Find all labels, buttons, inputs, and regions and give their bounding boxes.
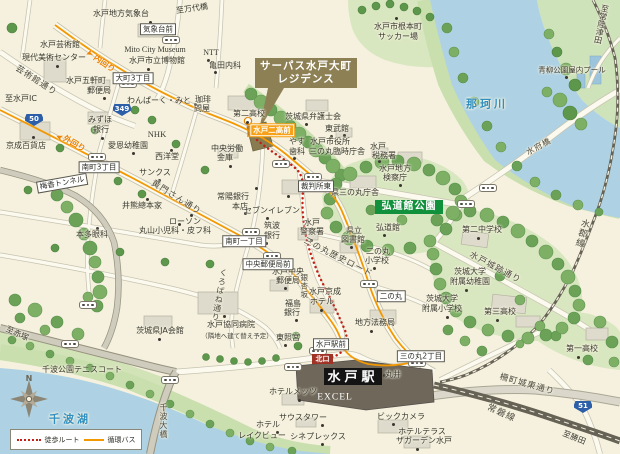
ntt: NTT xyxy=(203,49,219,57)
hotel-terrace-line2: ザガーデン水戸 xyxy=(396,437,452,445)
mito-police-line2: 警察署 xyxy=(300,228,324,236)
busstop-minamimachi-3: 南町3丁目 xyxy=(79,161,120,173)
senba-tennis: 千波公園テニスコート xyxy=(42,366,122,374)
ibadai-kg-line2: 附属幼稚園 xyxy=(450,278,490,286)
poi-dot xyxy=(321,443,324,446)
kameda-clinic: 亀田内科 xyxy=(209,62,241,70)
cityhall-line2: 三の丸臨時庁舎 xyxy=(309,148,365,156)
poi-dot xyxy=(496,319,499,322)
gokencho-po-line2: 郵便局 xyxy=(87,87,111,95)
nemoto-soccer-line1: 水戸市根本町 xyxy=(374,23,422,31)
daini-hs: 第二高校 xyxy=(233,110,265,118)
bus-stop-pill xyxy=(161,376,179,384)
aoyagi-pool: 青柳公園屋内プール xyxy=(538,66,606,74)
poi-dot xyxy=(223,315,226,318)
yasu-dental-line1: やす xyxy=(289,138,305,146)
north-exit-badge: 北口 xyxy=(312,354,333,364)
ken-sannomaru: 県三の丸庁舎 xyxy=(331,189,379,197)
south-tower: サウスタワー xyxy=(279,414,327,422)
kensatsucho-line1: 水戸地方 xyxy=(379,165,411,173)
tsukuba-bank-line1: 筑波 xyxy=(264,222,280,230)
mito-tax-line1: 水戸 xyxy=(370,143,386,151)
ibaraki-bar-assoc: 茨城県弁護士会 xyxy=(285,113,341,121)
gokencho-po-line1: 水戸五軒町 xyxy=(66,77,106,85)
cityhall-line1: 水戸市役所 xyxy=(310,138,350,146)
toshogu: 東照宮 xyxy=(276,334,300,342)
busstop-sannomaru-2: 三の丸2丁目 xyxy=(397,350,445,362)
walk-route-sample-icon xyxy=(17,439,41,441)
kodokan-park-badge: 弘道館公園 xyxy=(375,200,443,214)
busstop-mito-niko-mae: 水戸二高前 xyxy=(250,124,294,136)
poi-dot xyxy=(287,195,290,198)
bus-stop-pill xyxy=(79,301,97,309)
bus-stop-pill xyxy=(88,153,106,161)
coffee-tonya-line1: 珈琲 xyxy=(195,96,211,104)
poi-dot xyxy=(392,423,395,426)
ibadai-es-line1: 茨城大学 xyxy=(426,295,458,303)
poi-dot xyxy=(56,65,59,68)
mizuho-line1: みずほ xyxy=(88,116,112,124)
ninomaru-es-line2: 小学校 xyxy=(365,257,389,265)
lake-senba-name: 千波湖 xyxy=(49,414,91,425)
to-mito-ic: 至水戸IC xyxy=(5,95,37,103)
poi-dot xyxy=(295,319,298,322)
poi-dot xyxy=(565,76,568,79)
keisei-hotel-line1: 水戸京成 xyxy=(309,288,341,296)
poi-dot xyxy=(32,136,35,139)
coffee-tonya-line2: 問屋 xyxy=(194,105,210,113)
poi-dot xyxy=(158,338,161,341)
bus-stop-pill xyxy=(457,200,475,208)
bus-stop-pill xyxy=(360,280,378,288)
marui: 丸井 xyxy=(385,371,401,379)
poi-dot xyxy=(132,152,135,155)
poi-dot xyxy=(383,234,386,237)
keisei-hotel-line2: ホテル xyxy=(310,298,334,306)
busstop-kishodai-mae: 気象台前 xyxy=(140,23,176,35)
bus-stop-pill xyxy=(284,363,302,371)
poi-dot xyxy=(293,157,296,160)
busstop-ninomaru: 二の丸 xyxy=(377,290,406,302)
poi-dot xyxy=(370,330,373,333)
mito-city-museum: 水戸市立博物館 xyxy=(129,57,185,65)
wanpark-mito: わんぱーく・みと xyxy=(127,97,191,105)
poi-dot xyxy=(284,287,287,290)
poi-dot xyxy=(577,356,580,359)
pref-library-line2: 図書館 xyxy=(341,236,365,244)
poi-dot xyxy=(255,187,258,190)
poi-dot xyxy=(229,165,232,168)
poi-dot xyxy=(350,246,353,249)
pref-library-line1: 県立 xyxy=(346,227,362,235)
busstop-chuo-yubinkyoku-mae: 中央郵便局前 xyxy=(243,258,294,270)
hotel-terrace-line1: ホテルテラス xyxy=(398,428,446,436)
maruyama-clinic: 丸山小児科・皮フ科 xyxy=(139,227,211,235)
central-po-line2: 郵便局 xyxy=(276,277,300,285)
poi-dot xyxy=(298,399,301,402)
kodokan: 弘道館 xyxy=(376,224,400,232)
busstop-minamimachi-1: 南町一丁目 xyxy=(222,235,266,247)
poi-dot xyxy=(101,137,104,140)
bus-stop-pill xyxy=(272,160,290,168)
joyo-bank-line1: 常陽銀行 xyxy=(217,193,249,201)
chuo-rokin-line1: 中央労働 xyxy=(211,145,243,153)
ikuma: 井熊總本家 xyxy=(122,202,162,210)
daiichi-hs: 第一高校 xyxy=(566,345,598,353)
met-observatory: 水戸地方気象台 xyxy=(93,10,149,18)
mito-city-museum-en: Mito City Museum xyxy=(124,46,185,54)
poi-dot xyxy=(321,424,324,427)
poi-dot xyxy=(320,309,323,312)
poi-dot xyxy=(246,121,249,124)
keisei-dept: 京成百貨店 xyxy=(6,142,46,150)
kensatsucho-line2: 検察庁 xyxy=(383,174,407,182)
art-tower-line2: 現代美術センター xyxy=(22,54,86,62)
bus-route-label: 循環バス xyxy=(108,435,136,445)
daini-jhs: 第二中学校 xyxy=(462,226,502,234)
mito-tax-line2: 税務署 xyxy=(372,152,396,160)
busstop-mitoekimae: 水戸駅前 xyxy=(313,338,349,350)
busstop-saibansho-higashi: 裁判所東 xyxy=(298,180,334,192)
chuo-rokin-line2: 金庫 xyxy=(217,154,233,162)
busstop-omachi-3: 大町3丁目 xyxy=(113,72,154,84)
naka-river-name: 那珂川 xyxy=(466,99,508,110)
ibadai-es-line2: 附属小学校 xyxy=(422,305,462,313)
map-legend: 徒歩ルート 循環バス xyxy=(10,429,142,450)
bus-stop-pill xyxy=(162,36,180,44)
compass-rose: N xyxy=(6,372,52,424)
poi-dot xyxy=(214,71,217,74)
poi-dot xyxy=(266,217,269,220)
nhk: NHK xyxy=(148,130,166,139)
sunkus: サンクス xyxy=(139,169,171,177)
ninomaru-es-line1: 二の丸 xyxy=(366,248,390,256)
daisan-hs: 第三高校 xyxy=(484,308,516,316)
aion-kindergarten: 愛恩幼稚園 xyxy=(108,142,148,150)
poi-dot xyxy=(446,316,449,319)
area-map: サーパス水戸大町 レジデンス 弘道館公園 水戸駅 北口 N 徒歩ルート 循環バス… xyxy=(0,0,620,454)
poi-dot xyxy=(399,184,402,187)
poi-dot xyxy=(395,17,398,20)
property-name-badge: サーパス水戸大町 レジデンス xyxy=(255,58,357,88)
kyodo-hospital-note: （隣地へ建て替え予定） xyxy=(201,333,273,340)
bus-route-sample-icon xyxy=(84,439,104,441)
poi-dot xyxy=(416,448,419,451)
kyodo-hospital: 水戸協同病院 xyxy=(207,321,255,329)
poi-dot xyxy=(477,237,480,240)
hotel-lakeview-line2: レイクビュー xyxy=(238,432,286,440)
seiyodo: 西洋堂 xyxy=(155,153,179,161)
poi-dot xyxy=(103,97,106,100)
property-name-line1: サーパス水戸大町 xyxy=(260,60,352,73)
bic-camera: ビックカメラ xyxy=(377,413,425,421)
tsukuba-bank-line2: 銀行 xyxy=(264,232,280,240)
ibadai-kg-line1: 茨城大学 xyxy=(454,268,486,276)
tobukan: 東武館 xyxy=(325,125,349,133)
seven-eleven: セブンイレブン xyxy=(244,207,300,215)
nemoto-soccer-line2: サッカー場 xyxy=(378,33,418,41)
bus-stop-pill xyxy=(61,340,79,348)
poi-dot xyxy=(147,68,150,71)
cineplex: シネプレックス xyxy=(290,433,346,441)
bus-stop-pill xyxy=(479,184,497,192)
walk-route-label: 徒歩ルート xyxy=(45,435,80,445)
honda-eye: 本多眼科 xyxy=(76,231,108,239)
fukushima-bank-line1: 福島 xyxy=(285,300,301,308)
senba-ohashi: 千波大橋 xyxy=(159,403,167,439)
poi-dot xyxy=(284,344,287,347)
hotel-mets: ホテルメッツ xyxy=(269,388,317,396)
mito-police-line1: 水戸 xyxy=(304,219,320,227)
legal-affairs: 地方法務局 xyxy=(355,319,395,327)
yasu-dental-line2: 歯科 xyxy=(289,148,305,156)
ginkozaka: 銀杏坂 xyxy=(300,273,308,299)
poi-dot xyxy=(305,123,308,126)
ja-kaikan: 茨城県JA会館 xyxy=(136,327,184,335)
excel: EXCEL xyxy=(317,393,353,403)
fukushima-bank-line2: 銀行 xyxy=(284,309,300,317)
hotel-lakeview-line1: ホテル xyxy=(256,421,280,429)
mito-station-badge: 水戸駅 xyxy=(324,368,382,385)
poi-dot xyxy=(465,289,468,292)
art-tower-line1: 水戸芸術館 xyxy=(40,41,80,49)
mizuho-line2: 銀行 xyxy=(93,126,109,134)
property-name-line2: レジデンス xyxy=(277,73,334,86)
lawson: ローソン xyxy=(169,218,201,226)
